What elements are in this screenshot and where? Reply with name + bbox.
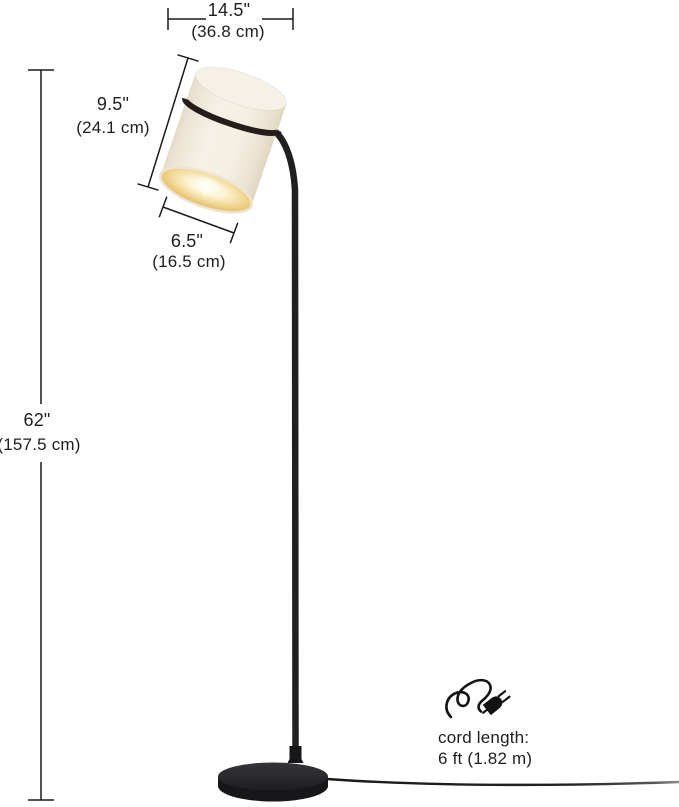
lamp-shade	[154, 58, 293, 223]
shade-height-metric-label: (24.1 cm)	[76, 117, 150, 138]
shade-height-inches-label: 9.5"	[97, 94, 129, 115]
lamp-pole	[272, 129, 296, 748]
pole-joint	[288, 746, 304, 763]
product-dimension-diagram: 14.5" (36.8 cm) 9.5" (24.1 cm) 6.5" (16.…	[0, 0, 679, 807]
shade-width-inches-label: 14.5"	[208, 0, 250, 21]
lamp-height-metric-label: (157.5 cm)	[0, 434, 81, 455]
cord-length-label: cord length:	[438, 727, 529, 748]
lamp-height-inches-label: 62"	[23, 410, 50, 431]
shade-diameter-inches-label: 6.5"	[171, 231, 203, 252]
plug-icon	[479, 689, 511, 718]
shade-diameter-metric-label: (16.5 cm)	[152, 251, 226, 272]
base-top	[218, 763, 328, 791]
cord-length-value: 6 ft (1.82 m)	[438, 748, 532, 769]
lamp-base	[218, 746, 328, 802]
power-plug-cord-icon	[446, 680, 511, 718]
power-cord	[327, 779, 679, 785]
shade-width-metric-label: (36.8 cm)	[191, 21, 265, 42]
